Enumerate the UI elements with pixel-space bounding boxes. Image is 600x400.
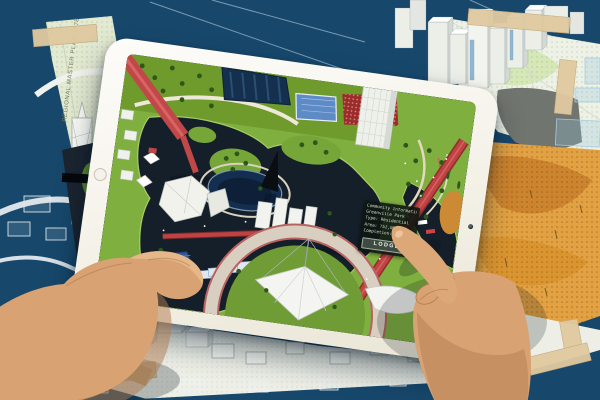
ar-info-popup[interactable]: Community Information Greenville Park Ty… <box>358 200 421 259</box>
illustration-stage: REGIONAL MASTER PLAN 1978 <box>0 0 600 400</box>
ar-masterplan-map <box>94 54 477 347</box>
home-button[interactable] <box>93 167 108 182</box>
tablet-screen[interactable]: Community Information Greenville Park Ty… <box>94 54 477 347</box>
camera-icon <box>468 224 474 230</box>
swimming-pool <box>292 92 339 125</box>
tablet-device[interactable]: Community Information Greenville Park Ty… <box>70 36 501 364</box>
